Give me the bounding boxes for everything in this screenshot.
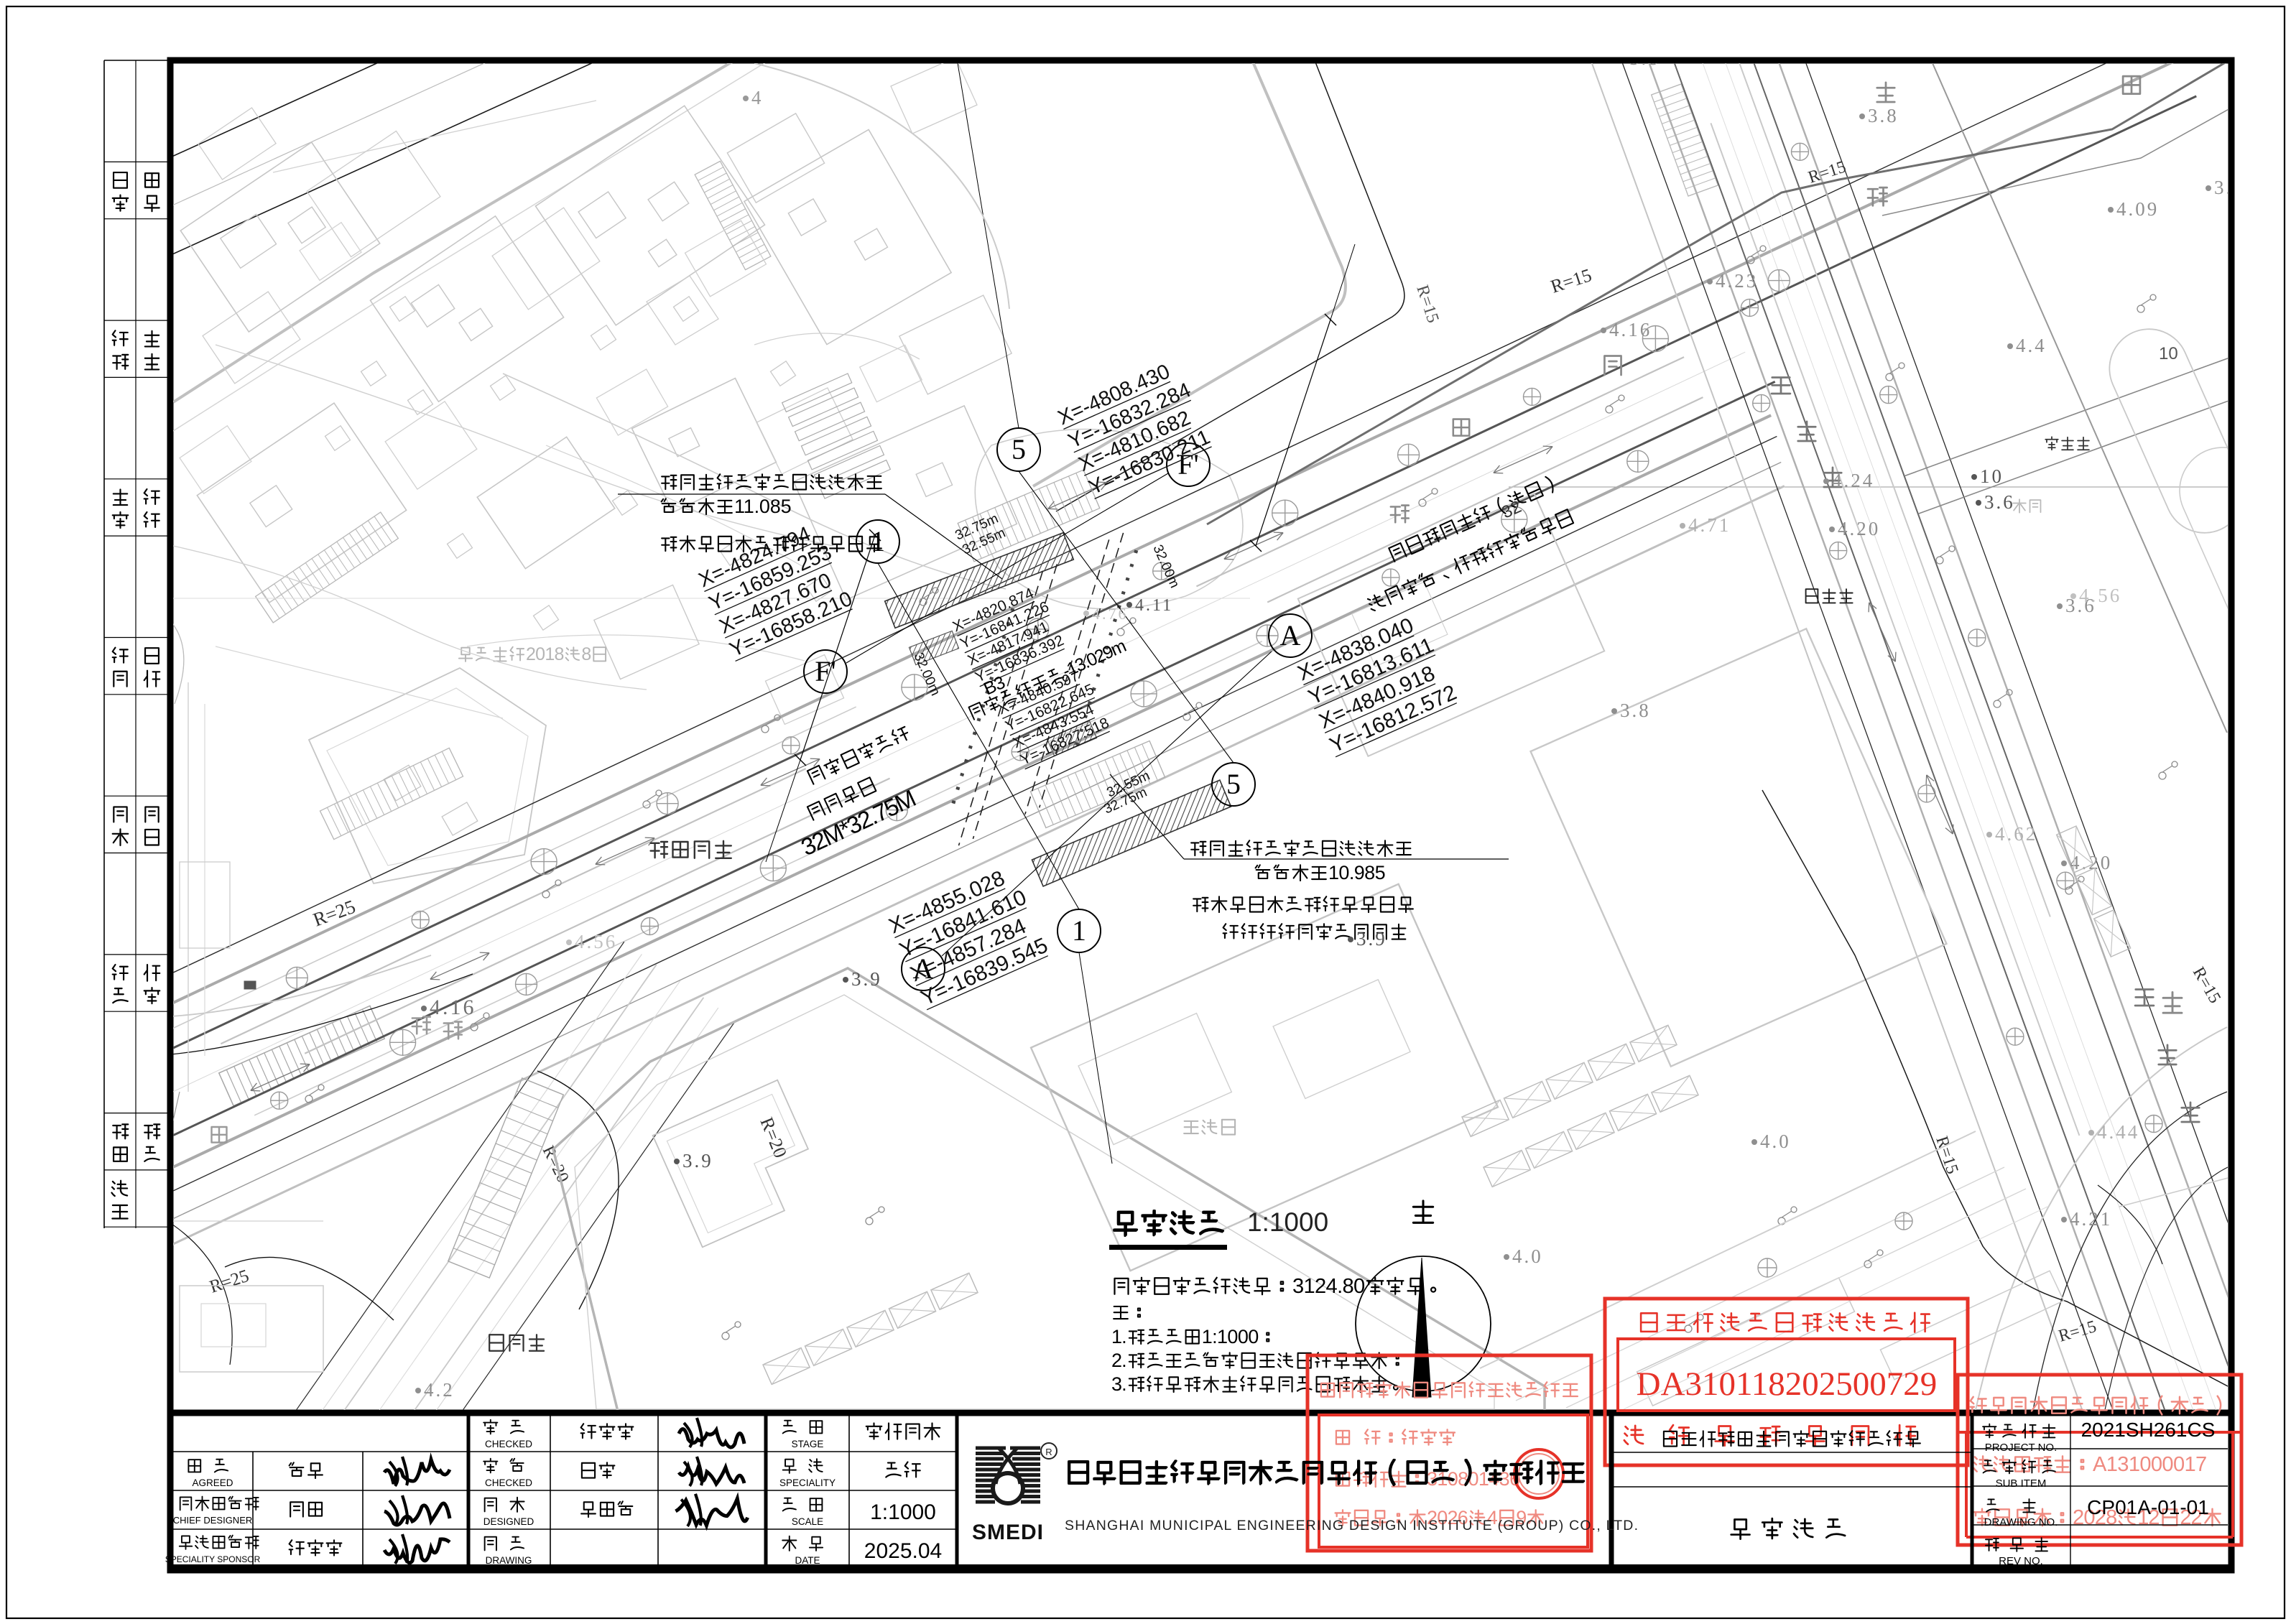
svg-text:10: 10: [1980, 465, 2004, 487]
svg-text:3.8: 3.8: [2241, 105, 2272, 126]
svg-text:3.9: 3.9: [1356, 928, 1387, 950]
svg-text:CP01A-01-01: CP01A-01-01: [2087, 1496, 2209, 1518]
svg-text:4.11: 4.11: [1135, 596, 1173, 615]
svg-text:1:1000: 1:1000: [1202, 1326, 1259, 1347]
svg-text:R=20: R=20: [756, 1114, 791, 1161]
svg-text:R=25: R=25: [310, 896, 358, 931]
svg-text:-13.029m: -13.029m: [1060, 636, 1130, 682]
svg-text:4.62: 4.62: [1995, 823, 2037, 845]
svg-text:4.44: 4.44: [2097, 1121, 2139, 1143]
svg-text:SPECIALITY: SPECIALITY: [779, 1477, 836, 1488]
svg-text:10.985: 10.985: [1328, 862, 1386, 883]
svg-text:A: A: [1280, 619, 1301, 651]
svg-text:1:1000: 1:1000: [870, 1500, 936, 1524]
svg-text:3.8: 3.8: [1620, 700, 1651, 721]
svg-text:R=20: R=20: [539, 1143, 573, 1186]
svg-text:5: 5: [1226, 768, 1241, 800]
svg-text:1:1000: 1:1000: [1247, 1207, 1328, 1237]
svg-text:CHECKED: CHECKED: [485, 1477, 532, 1488]
svg-text:SHANGHAI MUNICIPAL ENGINEERING: SHANGHAI MUNICIPAL ENGINEERING DESIGN IN…: [1065, 1518, 1639, 1533]
svg-text:DRAWING NO.: DRAWING NO.: [1984, 1516, 2058, 1528]
svg-text:F': F': [815, 655, 836, 687]
svg-text:AGREED: AGREED: [192, 1477, 233, 1488]
svg-text:4.0: 4.0: [1760, 1131, 1791, 1152]
svg-text:4.16: 4.16: [1609, 319, 1652, 340]
svg-text:1.: 1.: [1111, 1326, 1127, 1347]
svg-text:SUB ITEM: SUB ITEM: [1996, 1477, 2047, 1490]
svg-text:DRAWING: DRAWING: [486, 1555, 532, 1566]
svg-text:STAGE: STAGE: [792, 1439, 824, 1449]
svg-text:R=15: R=15: [2056, 1317, 2098, 1346]
svg-text:4.0: 4.0: [1512, 1245, 1543, 1267]
svg-text:PROJECT NO.: PROJECT NO.: [1985, 1442, 2058, 1454]
svg-text:4.20: 4.20: [1838, 518, 1880, 539]
svg-text:4.76: 4.76: [1092, 605, 1129, 623]
svg-text:R: R: [1045, 1447, 1052, 1457]
svg-text:R=15: R=15: [1548, 264, 1594, 297]
svg-text:2021SH261CS: 2021SH261CS: [2081, 1419, 2216, 1441]
svg-text:2018: 2018: [526, 644, 564, 664]
svg-text:4.16: 4.16: [430, 996, 476, 1019]
svg-text:4: 4: [751, 87, 764, 108]
svg-text:CHECKED: CHECKED: [485, 1439, 532, 1449]
svg-text:4.56: 4.56: [2079, 585, 2121, 606]
svg-text:SMEDI: SMEDI: [972, 1521, 1044, 1544]
svg-text:REV NO.: REV NO.: [1999, 1555, 2043, 1567]
svg-text:3.6: 3.6: [1984, 491, 2015, 513]
svg-text:4.56: 4.56: [575, 931, 617, 952]
svg-text:2.: 2.: [1111, 1350, 1127, 1371]
svg-text:4.21: 4.21: [2070, 1208, 2112, 1230]
svg-text:A131000017: A131000017: [2093, 1453, 2207, 1476]
svg-text:4.71: 4.71: [1688, 514, 1731, 536]
svg-text:8: 8: [581, 644, 591, 664]
svg-text:3.9: 3.9: [851, 968, 882, 990]
svg-text:2025.04: 2025.04: [864, 1539, 942, 1563]
svg-text:10: 10: [2159, 344, 2178, 363]
svg-text:DA310118202500729: DA310118202500729: [1637, 1365, 1938, 1403]
svg-text:3.8: 3.8: [1868, 105, 1899, 126]
svg-text:R=15: R=15: [2189, 964, 2224, 1006]
svg-text:CHIEF DESIGNER: CHIEF DESIGNER: [173, 1515, 253, 1526]
svg-text:4.09: 4.09: [2116, 198, 2159, 220]
svg-text:4.24: 4.24: [1832, 470, 1874, 491]
svg-text:3124.80: 3124.80: [1292, 1275, 1365, 1298]
svg-text:3.9: 3.9: [682, 1150, 713, 1171]
svg-text:4.23: 4.23: [1716, 270, 1758, 292]
svg-text:4.4: 4.4: [2016, 335, 2047, 356]
svg-text:3.: 3.: [1111, 1373, 1127, 1395]
svg-text:DATE: DATE: [795, 1555, 820, 1566]
svg-text:DESIGNED: DESIGNED: [483, 1516, 534, 1527]
svg-text:R=25: R=25: [208, 1266, 251, 1297]
svg-text:5: 5: [1012, 433, 1026, 465]
svg-text:1: 1: [1072, 914, 1086, 947]
svg-text:SCALE: SCALE: [792, 1516, 823, 1527]
svg-text:R=15: R=15: [1412, 283, 1442, 325]
svg-text:4.2: 4.2: [424, 1379, 455, 1401]
svg-text:SPECIALITY SPONSOR: SPECIALITY SPONSOR: [165, 1554, 261, 1564]
svg-text:11.085: 11.085: [734, 496, 792, 517]
